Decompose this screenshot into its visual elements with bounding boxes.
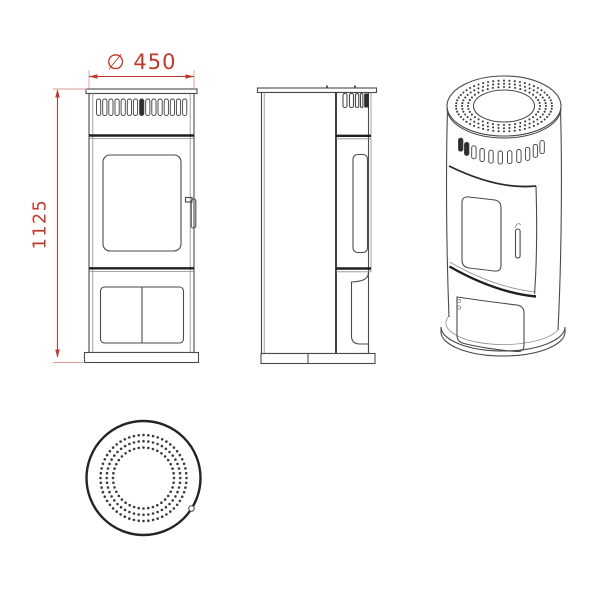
perforation-dot — [124, 452, 127, 455]
perforation-dot — [174, 495, 177, 498]
perforation-dot — [551, 105, 553, 107]
perspective-door-handle — [516, 229, 521, 258]
perforation-dot — [492, 123, 494, 125]
perforation-dot — [124, 438, 127, 441]
perforation-dot — [142, 434, 145, 437]
perforation-dot — [106, 482, 109, 485]
perforation-dot — [156, 443, 159, 446]
perforation-dot — [482, 90, 484, 92]
vent-slot — [498, 151, 502, 164]
perforation-dot — [524, 82, 526, 84]
drum-bottom-curve — [446, 316, 558, 345]
top-view — [87, 421, 201, 535]
perforation-dot — [533, 121, 535, 123]
perforation-dot — [152, 519, 155, 522]
perforation-dot — [537, 123, 539, 125]
perforation-dot — [147, 434, 150, 437]
perforation-dot — [108, 491, 111, 494]
perforation-dot — [514, 84, 516, 86]
perforation-dot — [519, 122, 521, 124]
perforation-dot — [106, 454, 109, 457]
perforation-dot — [128, 436, 131, 439]
vent-slot — [183, 99, 187, 116]
perforation-dot — [528, 83, 530, 85]
vent-slot — [158, 99, 162, 116]
perforation-dot — [539, 116, 541, 118]
perforation-dot — [147, 519, 150, 522]
perforation-dot — [529, 87, 531, 89]
perforation-dot — [487, 88, 489, 90]
perforation-dot — [168, 451, 171, 454]
perforation-dot — [107, 486, 110, 489]
side-screw-left — [326, 86, 328, 88]
perforation-dot — [179, 500, 182, 503]
perforation-dot — [121, 498, 124, 501]
perforation-dot — [462, 118, 464, 120]
perforation-dot — [469, 99, 471, 101]
perforation-dot — [118, 459, 121, 462]
perforation-dot — [107, 467, 110, 470]
perforation-dot — [176, 491, 179, 494]
perforation-dot — [487, 129, 489, 131]
height-dimension-label: 1125 — [31, 199, 51, 250]
perforation-dot — [544, 111, 546, 113]
perforation-dot — [167, 495, 170, 498]
perforation-dot — [112, 507, 115, 510]
perforation-dot — [119, 440, 122, 443]
perforation-dot — [477, 123, 479, 125]
side-vent-grille — [343, 94, 369, 108]
side-vent-slot — [361, 94, 363, 108]
perforation-dot — [477, 126, 479, 128]
drum-left-edge — [447, 110, 449, 317]
perforation-dot — [112, 446, 115, 449]
perforation-dot — [142, 446, 145, 449]
perforation-dot — [519, 129, 521, 131]
side-vent-slot — [350, 94, 354, 108]
perforation-dot — [173, 507, 176, 510]
perforation-dot — [473, 121, 475, 123]
perforation-dot — [508, 130, 510, 132]
perforation-dot — [100, 472, 103, 475]
perforation-dot — [183, 463, 186, 466]
perforation-dot — [465, 89, 467, 91]
front-view — [85, 89, 199, 363]
perforation-dot — [169, 463, 172, 466]
perforation-dot — [548, 113, 550, 115]
perforation-dot — [169, 491, 172, 494]
front-vent-grille — [97, 99, 187, 116]
drum-right-edge — [558, 110, 561, 330]
vent-slot — [472, 146, 476, 159]
perforation-dot — [100, 467, 103, 470]
perforation-dot — [172, 472, 175, 475]
perspective-handle-hook — [515, 224, 521, 228]
perforation-dot — [524, 124, 526, 126]
side-top-plate — [258, 88, 377, 93]
perforation-dot — [473, 85, 475, 87]
perforation-dot — [533, 89, 535, 91]
perforation-dot — [161, 438, 164, 441]
perforation-dot — [160, 501, 163, 504]
perforation-dot — [482, 82, 484, 84]
vent-slot — [109, 99, 113, 116]
perforation-dot — [105, 477, 108, 480]
top-lid-perforations — [455, 80, 553, 133]
perspective-hinge-top — [457, 299, 460, 302]
perforation-dot — [181, 495, 184, 498]
perforation-dot — [118, 495, 121, 498]
perforation-dot — [106, 472, 109, 475]
perforation-dot — [536, 118, 538, 120]
perforation-dot — [473, 125, 475, 127]
perforation-dot — [104, 458, 107, 461]
perforation-dot — [115, 443, 118, 446]
top-lid-outer-rim — [447, 76, 561, 136]
perforation-dot — [467, 108, 469, 110]
perforation-dot — [497, 127, 499, 129]
perspective-door-window — [462, 197, 501, 271]
perforation-dot — [465, 121, 467, 123]
perforation-dot — [152, 448, 155, 451]
perforation-dot — [469, 123, 471, 125]
perforation-dot — [492, 87, 494, 89]
perforation-dot — [161, 445, 164, 448]
perforation-dot — [528, 118, 530, 120]
perforation-dot — [133, 519, 136, 522]
perforation-dot — [147, 440, 150, 443]
perforation-dot — [519, 81, 521, 83]
vent-slot — [97, 99, 101, 116]
perforation-dot — [482, 120, 484, 122]
perforation-dot — [533, 125, 535, 127]
perforation-dot — [528, 92, 530, 94]
perforation-dot — [461, 108, 463, 110]
perforation-dot — [514, 87, 516, 89]
perforation-dot — [498, 130, 500, 132]
perforation-dot — [124, 509, 127, 512]
perforation-dot — [487, 122, 489, 124]
perforation-dot — [128, 504, 131, 507]
perforation-dot — [482, 86, 484, 88]
perforation-dot — [455, 108, 457, 110]
perforation-dot — [539, 102, 541, 104]
perforation-dot — [185, 477, 188, 480]
perforation-dot — [156, 450, 159, 453]
perforation-dot — [546, 94, 548, 96]
perforation-dot — [544, 118, 546, 120]
perforation-dot — [497, 124, 499, 126]
perforation-dot — [164, 498, 167, 501]
perforation-dot — [545, 102, 547, 104]
perforation-dot — [165, 506, 168, 509]
perforation-dot — [110, 458, 113, 461]
perforation-dot — [533, 85, 535, 87]
perforation-dot — [142, 440, 145, 443]
perforation-dot — [460, 94, 462, 96]
perforation-dot — [128, 443, 131, 446]
perforation-dot — [455, 102, 457, 104]
top-lid-thickness — [447, 108, 561, 138]
dimension-diameter: ∅ 450 — [89, 50, 194, 88]
perforation-dot — [113, 467, 116, 470]
perforation-dot — [532, 116, 534, 118]
perforation-dot — [172, 482, 175, 485]
perforation-dot — [514, 123, 516, 125]
perforation-dot — [124, 445, 127, 448]
perforation-dot — [156, 504, 159, 507]
perforation-dot — [112, 482, 115, 485]
perforation-dot — [487, 84, 489, 86]
height-arrow-bottom — [55, 350, 60, 359]
perforation-dot — [544, 99, 546, 101]
perforation-dot — [113, 486, 116, 489]
top-lid-inner-circle — [474, 90, 535, 122]
perforation-dot — [474, 94, 476, 96]
perforation-dot — [168, 503, 171, 506]
vent-slot — [525, 147, 529, 160]
perforation-dot — [462, 99, 464, 101]
perforation-dot — [539, 105, 541, 107]
perforation-dot — [469, 87, 471, 89]
perforation-dot — [119, 513, 122, 516]
perforation-dot — [548, 97, 550, 99]
perspective-upper-seam — [449, 166, 536, 187]
perforation-dot — [492, 80, 494, 82]
perforation-dot — [109, 450, 112, 453]
perforation-dot — [497, 86, 499, 88]
perforation-dot — [133, 435, 136, 438]
perforation-dot — [477, 92, 479, 94]
vent-slot — [121, 99, 125, 116]
perforation-dot — [470, 91, 472, 93]
perspective-door-seam — [535, 186, 537, 294]
vent-slot — [517, 150, 521, 163]
perforation-dot — [179, 472, 182, 475]
perforation-dot — [467, 105, 469, 107]
perforation-dot — [183, 491, 186, 494]
perforation-dot — [156, 517, 159, 520]
perforation-dot — [171, 467, 174, 470]
perforation-dot — [137, 440, 140, 443]
perforation-dot — [471, 114, 473, 116]
perforation-dot — [509, 86, 511, 88]
perforation-dot — [133, 512, 136, 515]
perforation-dot — [524, 120, 526, 122]
perforation-dot — [467, 94, 469, 96]
perforation-dot — [102, 491, 105, 494]
perforation-dot — [113, 499, 116, 502]
perforation-dot — [503, 80, 505, 82]
perforation-dot — [487, 81, 489, 83]
perforation-dot — [113, 454, 116, 457]
front-base-plate — [85, 353, 199, 363]
perforation-dot — [545, 105, 547, 107]
perforation-dot — [169, 510, 172, 513]
vent-slot — [127, 99, 131, 116]
perforation-dot — [174, 458, 177, 461]
perforation-dot — [116, 451, 119, 454]
perforation-dot — [147, 447, 150, 450]
perforation-dot — [519, 88, 521, 90]
perforation-dot — [545, 108, 547, 110]
perforation-dot — [456, 111, 458, 113]
perforation-dot — [147, 513, 150, 516]
perforation-dot — [508, 80, 510, 82]
perforation-dot — [176, 504, 179, 507]
side-vent-slot — [343, 94, 347, 108]
perforation-dot — [156, 511, 159, 514]
perforation-dot — [456, 99, 458, 101]
perforation-dot — [169, 443, 172, 446]
diameter-dimension-label: ∅ 450 — [106, 50, 176, 74]
perforation-dot — [477, 83, 479, 85]
perforation-dot — [497, 83, 499, 85]
perforation-dot — [137, 507, 140, 510]
perforation-dot — [458, 97, 460, 99]
perforation-dot — [120, 506, 123, 509]
perforation-dot — [115, 491, 118, 494]
perforation-dot — [100, 486, 103, 489]
perforation-dot — [550, 111, 552, 113]
perforation-dot — [542, 113, 544, 115]
perforation-dot — [165, 513, 168, 516]
perforation-dot — [160, 452, 163, 455]
perforation-dot — [469, 111, 471, 113]
perforation-dot — [535, 96, 537, 98]
perforation-dot — [181, 458, 184, 461]
perforation-dot — [537, 99, 539, 101]
perforation-dot — [179, 482, 182, 485]
perforation-dot — [471, 96, 473, 98]
perforation-dot — [514, 80, 516, 82]
perforation-dot — [115, 510, 118, 513]
perforation-dot — [474, 116, 476, 118]
perforation-dot — [184, 467, 187, 470]
perforation-dot — [115, 463, 118, 466]
perforation-dot — [147, 507, 150, 510]
vent-slot — [103, 99, 107, 116]
perforation-dot — [503, 124, 505, 126]
perforation-dot — [539, 108, 541, 110]
perspective-hinge-bottom — [457, 306, 460, 309]
perforation-dot — [112, 472, 115, 475]
perforation-dot — [455, 105, 457, 107]
perforation-dot — [120, 448, 123, 451]
base-plinth-top-rim — [441, 327, 565, 351]
diameter-arrow-right — [186, 74, 195, 79]
vent-slot — [140, 99, 144, 116]
perforation-dot — [461, 102, 463, 104]
perforation-dot — [142, 514, 145, 517]
side-screw-right — [354, 86, 356, 88]
perforation-dot — [467, 116, 469, 118]
perforation-dot — [519, 125, 521, 127]
perforation-dot — [503, 127, 505, 129]
perforation-dot — [551, 108, 553, 110]
perforation-dot — [508, 127, 510, 129]
vent-slot — [540, 141, 544, 154]
perforation-dot — [470, 118, 472, 120]
perforation-dot — [540, 89, 542, 91]
perforation-dot — [152, 506, 155, 509]
perforation-dot — [540, 121, 542, 123]
vent-slot — [164, 99, 168, 116]
perforation-dot — [185, 482, 188, 485]
perforation-dot — [492, 126, 494, 128]
perforation-dot — [152, 512, 155, 515]
vent-slot — [176, 99, 180, 116]
perforation-dot — [133, 441, 136, 444]
perforation-dot — [152, 441, 155, 444]
perforation-dot — [124, 501, 127, 504]
perforation-dot — [137, 519, 140, 522]
perforation-dot — [121, 455, 124, 458]
perforation-dot — [529, 123, 531, 125]
perforation-dot — [142, 507, 145, 510]
perforation-dot — [133, 506, 136, 509]
vent-slot — [459, 138, 463, 151]
perforation-dot — [137, 513, 140, 516]
vent-slot — [133, 99, 137, 116]
top-view-hinge-detail — [189, 506, 195, 512]
perforation-dot — [492, 84, 494, 86]
perforation-dot — [514, 126, 516, 128]
side-view — [258, 86, 377, 364]
perforation-dot — [528, 126, 530, 128]
perforation-dot — [128, 517, 131, 520]
perforation-dot — [551, 102, 553, 104]
perforation-dot — [482, 124, 484, 126]
perforation-dot — [133, 448, 136, 451]
perforation-dot — [462, 91, 464, 93]
perforation-dot — [185, 472, 188, 475]
diameter-arrow-left — [89, 74, 98, 79]
perforation-dot — [464, 113, 466, 115]
perforation-dot — [498, 80, 500, 82]
perforation-dot — [165, 440, 168, 443]
perforation-dot — [537, 87, 539, 89]
perforation-dot — [110, 495, 113, 498]
perforation-dot — [537, 111, 539, 113]
perforation-dot — [112, 477, 115, 480]
perforation-dot — [156, 436, 159, 439]
side-vent-slot — [356, 94, 359, 108]
perforation-dot — [532, 94, 534, 96]
perforation-dot — [477, 118, 479, 120]
perforation-dot — [482, 128, 484, 130]
perforation-dot — [102, 463, 105, 466]
perforation-dot — [460, 116, 462, 118]
perforation-dot — [524, 128, 526, 130]
top-view-outer-rim — [87, 421, 201, 535]
perforation-dot — [477, 87, 479, 89]
perforation-dot — [535, 114, 537, 116]
perforation-dot — [514, 130, 516, 132]
perforation-dot — [137, 447, 140, 450]
perforation-dot — [161, 515, 164, 518]
perforation-dot — [104, 495, 107, 498]
perforation-dot — [487, 125, 489, 127]
perforation-dot — [179, 454, 182, 457]
perforation-dot — [171, 499, 174, 502]
perforation-dot — [503, 86, 505, 88]
stove-technical-drawing: ∅ 450 1125 — [0, 0, 600, 600]
dimension-height: 1125 — [31, 89, 88, 363]
perforation-dot — [173, 477, 176, 480]
perforation-dot — [467, 102, 469, 104]
perforation-dot — [503, 83, 505, 85]
